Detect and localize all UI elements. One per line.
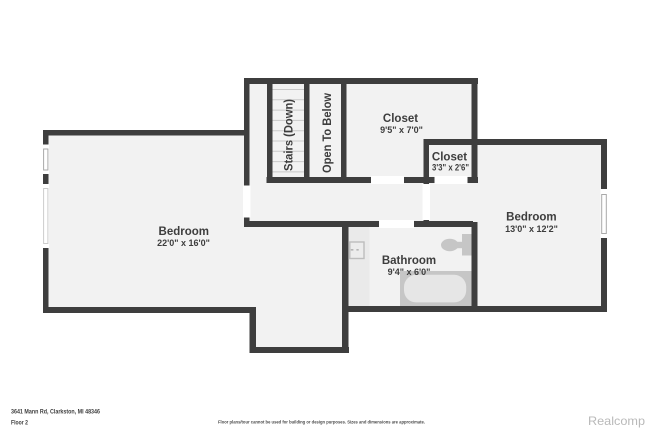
svg-text:9'5" x 7'0": 9'5" x 7'0" (380, 125, 423, 135)
svg-text:Bathroom: Bathroom (382, 255, 436, 267)
svg-text:Realcomp: Realcomp (588, 414, 645, 428)
svg-text:Stairs (Down): Stairs (Down) (283, 99, 295, 171)
svg-text:Closet: Closet (383, 113, 418, 125)
svg-text:22'0" x 16'0": 22'0" x 16'0" (157, 238, 210, 248)
svg-text:3'3" x 2'6": 3'3" x 2'6" (432, 163, 469, 173)
svg-text:Floor 2: Floor 2 (11, 419, 28, 426)
svg-text:9'4" x 6'0": 9'4" x 6'0" (388, 267, 431, 277)
svg-text:3641 Mann Rd, Clarkston, MI 48: 3641 Mann Rd, Clarkston, MI 48346 (11, 408, 100, 415)
svg-text:13'0" x 12'2": 13'0" x 12'2" (505, 224, 558, 234)
svg-text:Floor plans/tour cannot be use: Floor plans/tour cannot be used for buil… (218, 420, 425, 426)
svg-text:Bedroom: Bedroom (506, 212, 556, 224)
svg-text:Bedroom: Bedroom (159, 226, 209, 238)
svg-text:Open To Below: Open To Below (322, 93, 334, 173)
